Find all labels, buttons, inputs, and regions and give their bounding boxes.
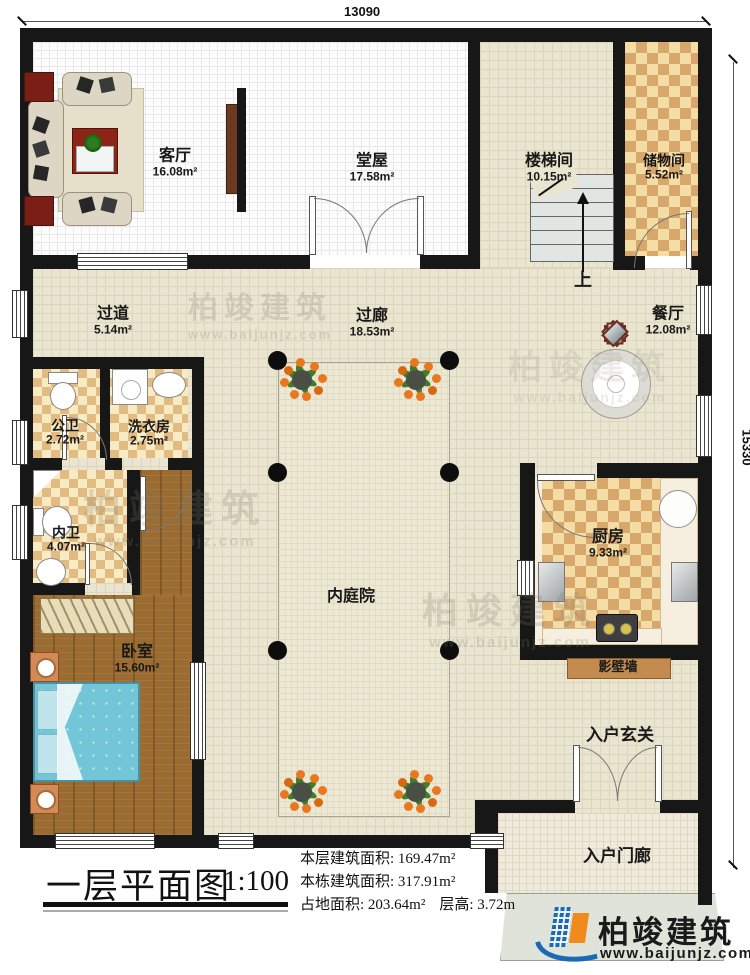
- wall: [132, 583, 140, 595]
- top-dimension-line: [22, 21, 706, 22]
- window: [12, 420, 28, 465]
- top-dimension-label: 13090: [340, 4, 384, 19]
- wall: [20, 28, 712, 42]
- right-dimension-label: 15330: [740, 426, 750, 468]
- room-label-courtyard: 内庭院: [327, 588, 375, 606]
- potted-plant: [392, 356, 438, 402]
- plan-stats: 本层建筑面积: 169.47m² 本栋建筑面积: 317.91m² 占地面积: …: [300, 848, 515, 917]
- kitchen-sink: [671, 562, 698, 602]
- wall: [468, 42, 480, 268]
- wall: [613, 42, 625, 260]
- sofa-cushion: [99, 77, 116, 94]
- laundry-sink: [152, 372, 186, 398]
- potted-plant: [392, 768, 438, 814]
- room-label-gallery: 过廊18.53m²: [350, 308, 395, 339]
- room-label-kitchen: 厨房9.33m²: [589, 529, 627, 560]
- nightstand: [30, 652, 59, 682]
- sofa: [62, 192, 132, 226]
- window: [218, 833, 254, 849]
- wall: [480, 800, 575, 813]
- washing-machine: [112, 369, 148, 405]
- bath-sink: [36, 558, 66, 586]
- room-label-stair-room: 楼梯间10.15m²: [525, 153, 573, 184]
- stat-building-area: 本栋建筑面积: 317.91m²: [300, 871, 515, 894]
- sofa-cushion: [33, 165, 49, 181]
- kitchen-basin: [659, 490, 697, 528]
- window: [190, 662, 206, 760]
- column: [440, 351, 459, 370]
- room-label-public-bath: 公卫2.72m²: [46, 419, 84, 448]
- stat-floor-area: 本层建筑面积: 169.47m²: [300, 848, 515, 871]
- wall: [192, 357, 204, 835]
- room-label-laundry: 洗衣房2.75m²: [128, 420, 170, 449]
- wall: [28, 458, 62, 470]
- column: [268, 641, 287, 660]
- window: [12, 505, 28, 560]
- pillow: [37, 690, 59, 730]
- room-label-hall: 堂屋17.58m²: [350, 153, 395, 184]
- wall: [188, 255, 310, 269]
- side-table: [24, 196, 54, 226]
- title-underline-thin: [43, 910, 288, 912]
- window: [55, 833, 155, 849]
- potted-plant: [278, 356, 324, 402]
- stair-arrow-head: [577, 192, 589, 204]
- sheet-fold: [57, 684, 83, 780]
- wall: [520, 463, 535, 478]
- wall: [698, 28, 712, 905]
- right-dimension-line: [733, 62, 734, 868]
- sofa: [62, 72, 132, 106]
- floor-plan: 13090 15330: [0, 0, 750, 975]
- window: [12, 290, 28, 338]
- company-logo: 柏竣建筑 www.baijunjz.com: [538, 903, 738, 965]
- window: [77, 253, 188, 270]
- logo-url: www.baijunjz.com: [600, 945, 750, 962]
- wall: [597, 463, 698, 478]
- room-label-storage: 储物间5.52m²: [643, 154, 685, 183]
- plan-scale: 1:100: [223, 865, 289, 898]
- kitchen-sink: [538, 562, 565, 602]
- nightstand: [30, 784, 59, 814]
- window: [517, 560, 535, 596]
- window: [696, 395, 712, 457]
- window: [696, 285, 712, 335]
- stat-footprint-and-height: 占地面积: 203.64m²层高: 3.72m: [300, 894, 515, 917]
- column: [440, 463, 459, 482]
- column: [440, 641, 459, 660]
- room-label-bedroom: 卧室15.60m²: [115, 644, 160, 675]
- window: [470, 833, 504, 849]
- logo-building-icon: [538, 905, 596, 963]
- toilet: [50, 382, 76, 410]
- room-label-entry-porch: 入户门廊: [583, 848, 651, 867]
- bed: [33, 682, 140, 782]
- stair-direction-arrow: [582, 200, 584, 272]
- pillow: [37, 734, 59, 774]
- tv-wall: [237, 88, 246, 212]
- stairs: [530, 174, 614, 262]
- column: [268, 463, 287, 482]
- wardrobe: [40, 598, 134, 634]
- room-label-dining: 餐厅12.08m²: [646, 306, 691, 337]
- room-label-entry-foyer: 入户玄关: [586, 727, 654, 746]
- wall: [28, 357, 193, 369]
- potted-plant: [278, 768, 324, 814]
- wall: [105, 458, 122, 470]
- wall: [127, 470, 140, 583]
- wall: [660, 800, 698, 813]
- side-table: [24, 72, 54, 102]
- stair-up-label: 上: [574, 271, 592, 291]
- door-leaf: [537, 474, 595, 481]
- stove: [596, 614, 638, 642]
- room-label-corridor: 过道5.14m²: [94, 306, 132, 337]
- wall: [168, 458, 193, 470]
- room-label-inner-bath: 内卫4.07m²: [47, 526, 85, 555]
- wall: [28, 255, 77, 269]
- table-plant: [84, 134, 102, 152]
- screen-wall-label: 影壁墙: [598, 660, 637, 674]
- room-label-living: 客厅16.08m²: [153, 148, 198, 179]
- title-underline-thick: [43, 902, 288, 907]
